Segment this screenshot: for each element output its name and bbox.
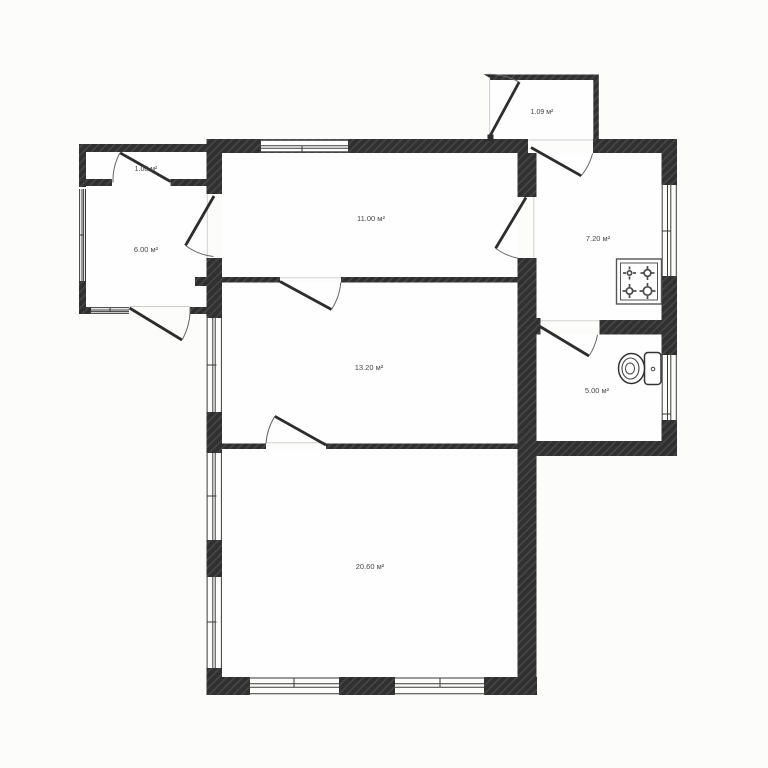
svg-text:20.60 м²: 20.60 м² [356, 562, 385, 571]
svg-text:13.20 м²: 13.20 м² [355, 363, 384, 372]
svg-text:6.00 м²: 6.00 м² [134, 245, 159, 254]
svg-text:7.20 м²: 7.20 м² [586, 234, 611, 243]
svg-text:5.00 м²: 5.00 м² [585, 386, 610, 395]
svg-text:1.09 м²: 1.09 м² [531, 109, 554, 116]
svg-text:11.00 м²: 11.00 м² [357, 214, 385, 223]
svg-text:1.08 м²: 1.08 м² [135, 166, 158, 173]
